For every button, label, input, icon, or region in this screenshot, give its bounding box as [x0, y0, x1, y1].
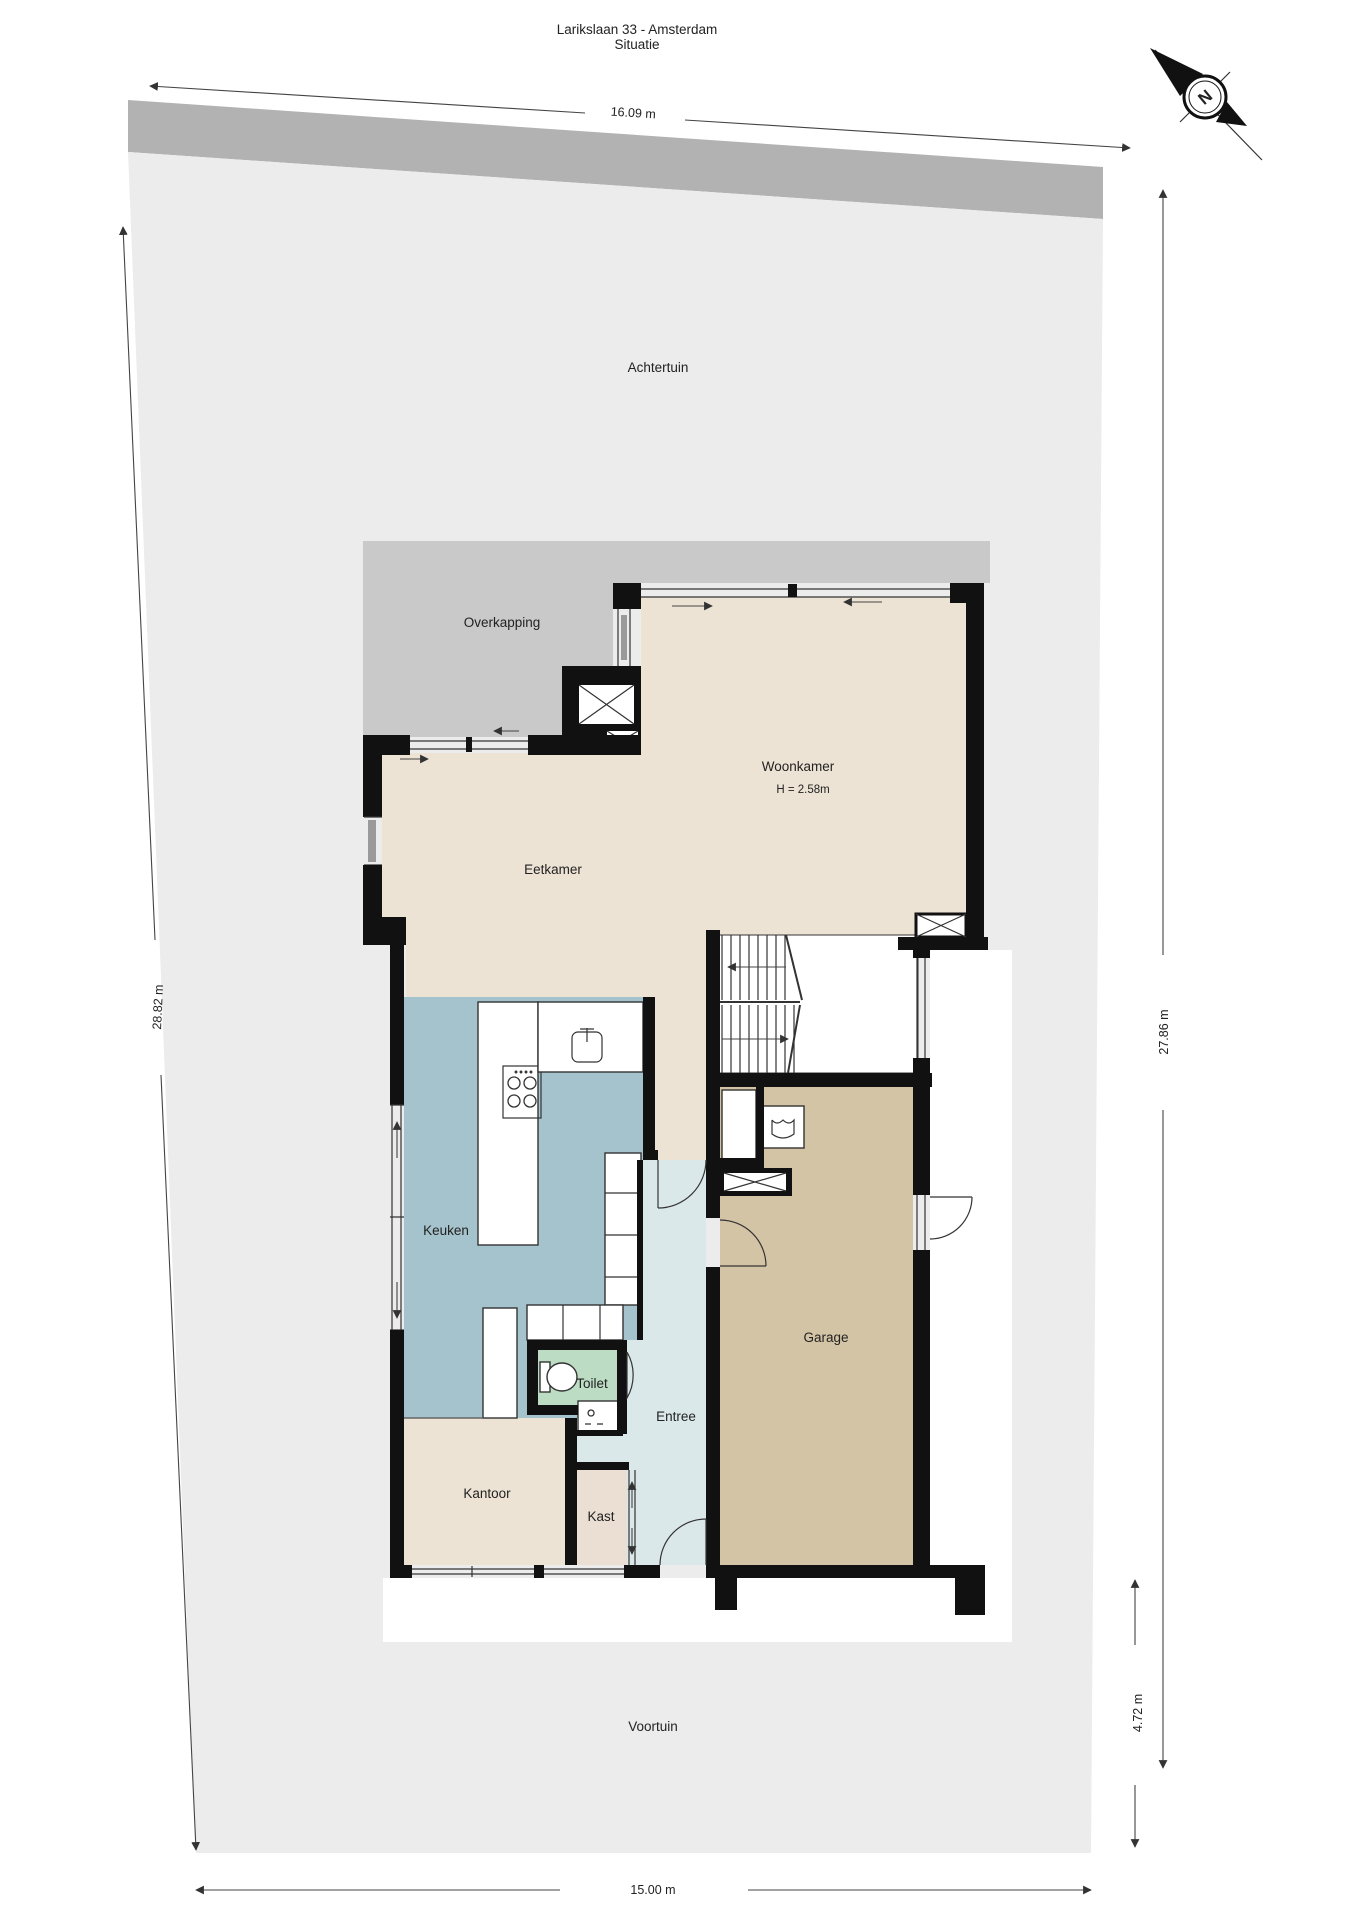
- garage-duct: [718, 1168, 792, 1196]
- kitchen-island: [478, 1002, 538, 1245]
- dim-bottom-label: 15.00 m: [630, 1883, 675, 1897]
- floorplan-page: 16.09 m 28.82 m 27.86 m 4.72 m 15.00 m: [0, 0, 1358, 1920]
- garage-niche: [722, 1090, 756, 1160]
- dim-right: 27.86 m: [1157, 190, 1171, 1768]
- living-se-window: [916, 914, 966, 937]
- pantry-cabinet: [483, 1308, 517, 1418]
- back-garden-label: Achtertuin: [628, 360, 689, 375]
- office-label: Kantoor: [463, 1486, 511, 1501]
- page-title: Larikslaan 33 - Amsterdam: [557, 22, 718, 37]
- stair-hall-floor: [718, 935, 918, 1073]
- garage-label: Garage: [803, 1330, 848, 1345]
- dim-front-garden: 4.72 m: [1131, 1580, 1145, 1847]
- canopy-roof-strip: [363, 541, 990, 583]
- dim-bottom: 15.00 m: [196, 1883, 1091, 1897]
- hall-floor-1: [643, 1160, 706, 1565]
- toilet-label: Toilet: [576, 1376, 608, 1391]
- wardrobe-row: [527, 1305, 623, 1340]
- dim-right-label: 27.86 m: [1157, 1009, 1171, 1054]
- front-garden-label: Voortuin: [628, 1719, 678, 1734]
- living-room-height-note: H = 2.58m: [776, 784, 829, 796]
- dim-top-label: 16.09 m: [610, 105, 656, 122]
- hall-floor-3: [575, 1434, 643, 1462]
- compass-rose: N: [1150, 48, 1262, 160]
- kitchen-cabinet-column: [605, 1153, 641, 1305]
- dim-front-garden-label: 4.72 m: [1131, 1694, 1145, 1732]
- front-apron: [383, 1578, 1012, 1642]
- hall-label: Entree: [656, 1409, 696, 1424]
- side-path: [930, 950, 1012, 1642]
- kitchen-label: Keuken: [423, 1223, 469, 1238]
- porch-column-left: [715, 1578, 737, 1610]
- porch-column-right: [955, 1578, 985, 1615]
- dining-room-label: Eetkamer: [524, 862, 582, 877]
- washstand: [578, 1401, 620, 1432]
- dim-left-label: 28.82 m: [150, 984, 166, 1030]
- toilet-bowl-icon: [547, 1363, 577, 1391]
- living-room-label: Woonkamer: [762, 759, 835, 774]
- site-plan-drawing: 16.09 m 28.82 m 27.86 m 4.72 m 15.00 m: [0, 0, 1358, 1920]
- garage-basin: [762, 1106, 804, 1148]
- canopy-label: Overkapping: [464, 615, 541, 630]
- closet-label: Kast: [587, 1509, 614, 1524]
- page-subtitle: Situatie: [614, 37, 659, 52]
